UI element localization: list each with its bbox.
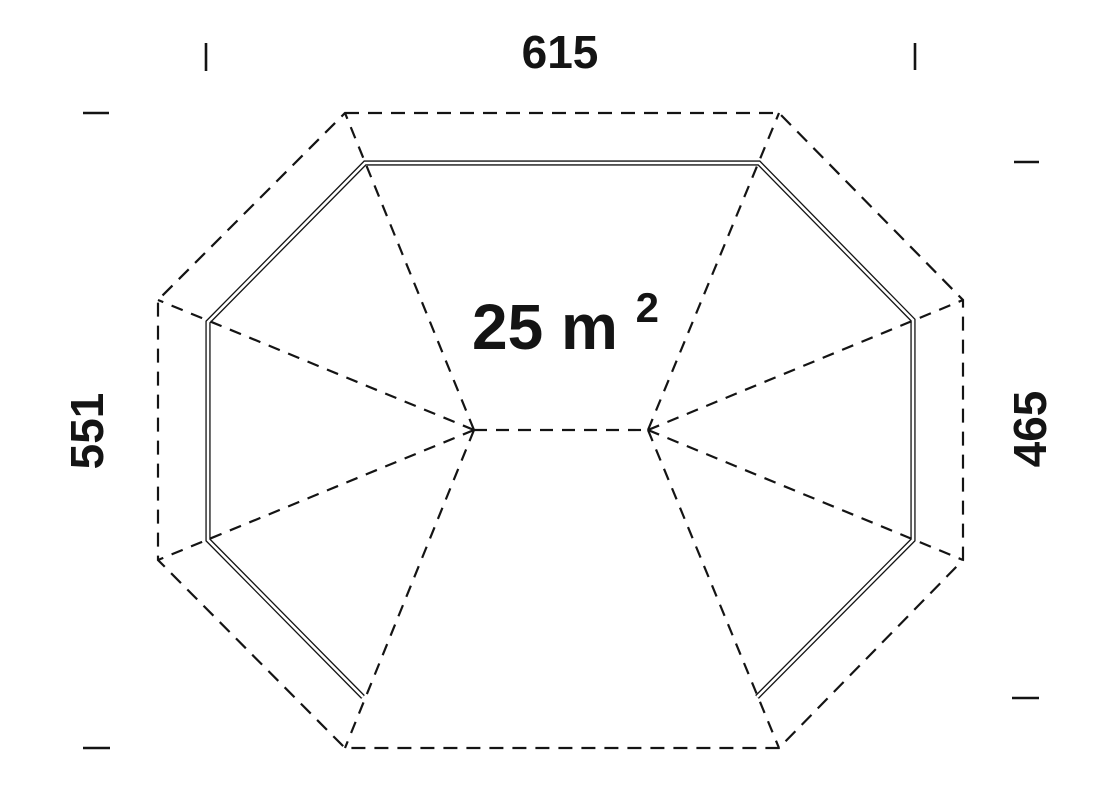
roof-outline [158, 113, 963, 748]
dimension-label-top-width: 615 [522, 26, 599, 78]
dimension-ticks [83, 43, 1039, 748]
floor-plan-page: 615 551 465 25 m 2 [0, 0, 1096, 800]
wall-outline-inner-core [208, 163, 913, 697]
wall-outline-outer-stroke [208, 163, 913, 697]
area-label-value: 25 m [472, 291, 618, 363]
area-label-exponent: 2 [636, 284, 659, 331]
hip-line [345, 430, 474, 748]
hip-line [648, 300, 963, 430]
dimension-label-right-height: 465 [1004, 391, 1056, 468]
hip-line [648, 430, 963, 560]
roof-hip-lines [158, 113, 963, 748]
area-label: 25 m 2 [472, 284, 659, 363]
dimension-label-left-height: 551 [61, 393, 113, 470]
hip-line [648, 430, 779, 748]
wall-outline [208, 163, 913, 697]
floor-plan-drawing: 615 551 465 25 m 2 [0, 0, 1096, 800]
